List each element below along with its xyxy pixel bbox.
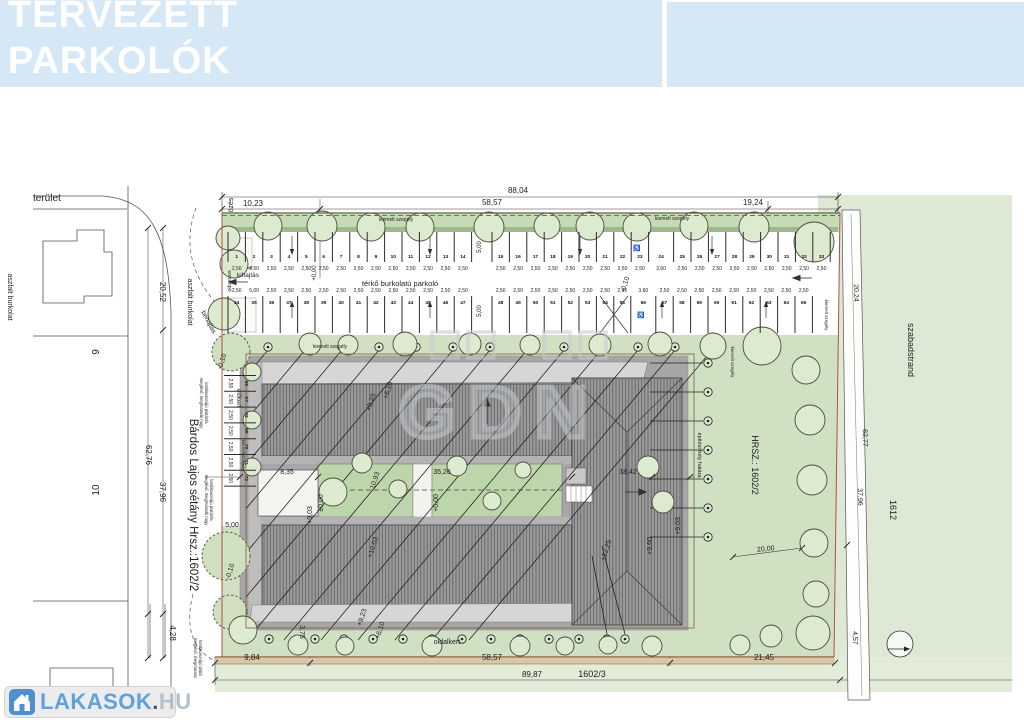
stall-number: 38 [304, 300, 310, 306]
stall-dim: 2,50 [548, 266, 558, 272]
tree [803, 581, 829, 607]
stall-number: 8 [357, 254, 360, 260]
bollard-dot [707, 536, 710, 539]
stall-dim: 2,50 [496, 266, 506, 272]
stall-dim: 2,50 [227, 458, 233, 468]
tree [642, 636, 662, 656]
stall-number: 19 [568, 254, 574, 260]
tree [623, 213, 651, 241]
bollard-dot [268, 638, 271, 641]
bollard-dot [578, 638, 581, 641]
stall-dim: 2,50 [232, 288, 242, 294]
stall-number: 29 [749, 254, 755, 260]
site-plan-drawing: 12,5022,5032,5042,5052,5062,5072,5082,50… [0, 0, 1024, 723]
stall-dim: 2,50 [354, 266, 364, 272]
plan-label: +0,00 [312, 265, 318, 281]
plan-label: 62,77 [861, 429, 869, 447]
plan-label: 10 [91, 484, 102, 496]
stall-dim: 2,50 [531, 266, 541, 272]
stall-dim: 2,50 [747, 288, 757, 294]
house-icon [9, 689, 35, 715]
tree [797, 465, 827, 495]
plan-label: 58,57 [482, 653, 503, 662]
stall-number: 33 [819, 254, 825, 260]
stall-dim: 2,50 [513, 266, 523, 272]
stall-dim: 2,50 [458, 288, 468, 294]
plan-label: 35,26 [433, 469, 451, 476]
stall-dim: 2,50 [513, 288, 523, 294]
stall-number: 15 [498, 254, 504, 260]
stair-symbol [566, 486, 592, 502]
stall-dim: 2,50 [319, 288, 329, 294]
stall-number: 46 [443, 300, 449, 306]
plan-label: ♿ [637, 311, 645, 319]
plan-label: lombkoronájú plátá [198, 640, 203, 676]
plan-label: terület [33, 193, 61, 204]
stall-number: 18 [550, 254, 556, 260]
logo-text-dot: . [152, 689, 159, 714]
bollard-dot [378, 346, 381, 349]
bollard-dot [267, 346, 270, 349]
stall-number: 51 [550, 300, 556, 306]
plan-label: 62,76 [144, 445, 153, 466]
plan-label: aszfalt burkolat [186, 278, 193, 325]
stall-dim: 2,50 [284, 288, 294, 294]
stall-dim: 2,50 [267, 288, 277, 294]
tree [474, 212, 504, 242]
plan-label: özés [228, 197, 235, 212]
stall-dim: 2,50 [677, 266, 687, 272]
stall-number: 43 [391, 300, 397, 306]
plan-label: ♿ [633, 244, 641, 252]
tree [794, 222, 834, 262]
stall-dim: 2,50 [301, 266, 311, 272]
plan-label: 9,84 [244, 653, 260, 662]
bollard-dot [707, 449, 710, 452]
stall-dim: 2,50 [227, 442, 233, 452]
stall-dim: 2,50 [635, 266, 645, 272]
plan-label: 1612 [888, 500, 898, 520]
stall-dim: 2,50 [583, 266, 593, 272]
stall-dim: 2,50 [712, 288, 722, 294]
stall-number: 31 [784, 254, 790, 260]
plan-label: 4,57 [851, 631, 858, 645]
stall-dim: 2,50 [423, 288, 433, 294]
stall-dim: 2,50 [458, 266, 468, 272]
tree [792, 356, 820, 384]
stall-dim: 2,50 [712, 266, 722, 272]
stall-dim: 5,00 [249, 288, 259, 294]
stall-number: 61 [731, 300, 737, 306]
stall-number: 47 [460, 300, 466, 306]
plan-label: kiemelt szegély [824, 300, 829, 332]
stall-dim: 2,50 [799, 288, 809, 294]
tree [556, 637, 574, 655]
stall-dim: 2,50 [694, 288, 704, 294]
plan-label: 58,57 [482, 198, 503, 207]
bollard-dot [707, 507, 710, 510]
tree [795, 405, 825, 435]
stall-number: 48 [498, 300, 504, 306]
plan-label: 89,87 [522, 670, 543, 679]
stall-number: 40 [338, 300, 344, 306]
stall-number: 52 [568, 300, 574, 306]
stall-dim: 2,50 [799, 266, 809, 272]
plan-label: ±0,00 [318, 494, 325, 512]
stall-number: 22 [620, 254, 626, 260]
plan-label: meglévő, megmaranc [193, 638, 198, 678]
tree [510, 636, 530, 656]
stall-dim: 2,50 [677, 288, 687, 294]
stall-number: 64 [784, 300, 790, 306]
bollard-dot [707, 478, 710, 481]
bollard-dot [707, 362, 710, 365]
stall-dim: 2,50 [600, 288, 610, 294]
tree [520, 335, 540, 355]
plan-label: 37,96 [158, 482, 167, 503]
plan-label: 20,24 [852, 284, 860, 302]
stall-dim: 2,50 [565, 288, 575, 294]
plan-label: 19,24 [743, 198, 764, 207]
tree [652, 491, 674, 513]
tree [483, 492, 501, 510]
lakasok-logo[interactable]: LAKASOK.HU [4, 686, 176, 718]
stall-number: 58 [679, 300, 685, 306]
stall-dim: 3,60 [638, 288, 648, 294]
stall-dim: 2,50 [227, 410, 233, 420]
plan-label: 3,75 [298, 625, 305, 639]
tree [229, 616, 257, 644]
plan-label: építési hely határa [696, 433, 702, 479]
tree [700, 333, 726, 359]
stall-dim: 2,50 [406, 288, 416, 294]
tree [576, 212, 604, 240]
plan-label: 9 [91, 349, 102, 355]
stall-number: 56 [641, 300, 647, 306]
stall-number: 17 [533, 254, 539, 260]
plan-label: HRSZ.: 1602/2 [750, 435, 760, 495]
stall-number: 13 [443, 254, 449, 260]
tree [743, 327, 781, 365]
plan-label: 1602/3 [578, 669, 606, 679]
stall-dim: 2,50 [371, 288, 381, 294]
stall-dim: 2,50 [729, 288, 739, 294]
bollard-dot [402, 638, 405, 641]
stall-number: 5 [305, 254, 308, 260]
stall-dim: 2,50 [388, 266, 398, 272]
plan-label: szabadstrand [906, 323, 916, 377]
plan-label: kiemelt szegély [313, 344, 348, 350]
stall-number: 53 [585, 300, 591, 306]
stall-number: 12 [425, 254, 431, 260]
stall-dim: 2,50 [227, 379, 233, 389]
bollard-dot [452, 346, 455, 349]
tree [730, 635, 750, 655]
stall-dim: 2,50 [695, 266, 705, 272]
bollard-dot [637, 346, 640, 349]
bollard-dot [314, 638, 317, 641]
plan-label: +9,60 [647, 537, 654, 555]
stall-number: 39 [321, 300, 327, 306]
plan-label: 88,04 [508, 186, 529, 195]
stall-dim: 2,50 [781, 288, 791, 294]
plan-label: +0,00 [433, 494, 440, 512]
north-symbol [887, 631, 913, 657]
stall-number: 1 [235, 254, 238, 260]
stall-dim: 2,50 [618, 266, 628, 272]
stall-number: 3 [270, 254, 273, 260]
tree [459, 333, 481, 355]
tree [760, 625, 782, 647]
bollard-dot [461, 638, 464, 641]
stall-number: 25 [680, 254, 686, 260]
stall-number: 21 [602, 254, 608, 260]
plan-label: 8,35 [280, 469, 294, 476]
logo-text-tld: HU [159, 689, 192, 714]
stall-number: 10 [391, 254, 397, 260]
tree [389, 480, 407, 498]
plan-label: térkő burkolatú parkoló [362, 279, 438, 288]
stall-number: 9 [375, 254, 378, 260]
stall-dim: 2,50 [817, 266, 827, 272]
plan-label: 4,28 [168, 625, 177, 641]
plan-label: meglévő, megmaradó nagy [204, 475, 209, 527]
stall-dim: 2,50 [764, 266, 774, 272]
stall-dim: 2,50 [227, 426, 233, 436]
stall-dim: 2,50 [371, 266, 381, 272]
watermark-text: GDN [399, 373, 601, 453]
stall-dim: 2,50 [531, 288, 541, 294]
stall-number: 23 [637, 254, 643, 260]
bollard-dot [490, 638, 493, 641]
plan-label: Bárdos Lajos sétány Hrsz.:1602/2 [187, 419, 199, 592]
tree [534, 213, 560, 239]
tree [393, 332, 417, 356]
stall-number: 2 [253, 254, 256, 260]
stall-number: 34 [234, 300, 240, 306]
stall-number: 4 [288, 254, 291, 260]
stall-dim: 2,50 [782, 266, 792, 272]
stall-number: 27 [714, 254, 720, 260]
tree [352, 453, 372, 473]
stall-dim: 2,50 [227, 394, 233, 404]
plan-label: 37,96 [856, 488, 864, 506]
plan-label: előkert [235, 389, 241, 407]
stall-number: 28 [732, 254, 738, 260]
stall-number: 44 [408, 300, 414, 306]
stall-number: 60 [714, 300, 720, 306]
stall-dim: 2,50 [319, 266, 329, 272]
plan-label: sorompó [226, 270, 232, 291]
stall-dim: 2,50 [764, 288, 774, 294]
tree [599, 636, 617, 654]
stall-dim: 2,50 [660, 288, 670, 294]
plan-label: +9,03 [675, 517, 682, 535]
stall-number: 26 [697, 254, 703, 260]
plan-label: kiemelt szegély [379, 217, 414, 223]
stall-dim: 2,50 [730, 266, 740, 272]
plan-label: 5,00 [477, 241, 483, 253]
stall-dim: 2,50 [441, 288, 451, 294]
stall-dim: 2,50 [354, 288, 364, 294]
plan-label: kihajtás [237, 272, 260, 279]
stall-number: 42 [373, 300, 379, 306]
stall-number: 65 [801, 300, 807, 306]
plan-label: lombkoronájú platánfa [209, 479, 214, 521]
stall-dim: 2,50 [548, 288, 558, 294]
stall-dim: 2,50 [600, 266, 610, 272]
stall-number: 41 [356, 300, 362, 306]
plan-label: +9,03 [307, 506, 314, 524]
plan-label: 5,00 [225, 522, 239, 529]
plan-label: meglévő, megmaradó nagy [199, 378, 204, 430]
plan-label: lombkoronájú platánfa [204, 382, 209, 424]
stall-dim: 2,50 [336, 288, 346, 294]
bollard-dot [548, 638, 551, 641]
stall-number: 24 [658, 254, 664, 260]
logo-text-main: LAKASOK [40, 689, 152, 714]
plan-label: aszfalt burkolat [6, 273, 13, 320]
stall-number: 32 [801, 254, 807, 260]
stall-dim: 2,50 [267, 266, 277, 272]
stall-dim: 2,50 [336, 266, 346, 272]
stall-dim: 2,50 [301, 288, 311, 294]
tree [515, 462, 531, 478]
plan-label: kiemelt szegély [730, 347, 735, 379]
tree [796, 616, 830, 650]
stall-number: 49 [515, 300, 521, 306]
plan-label: kiemelt szegély [241, 440, 246, 472]
stall-dim: 2,50 [441, 266, 451, 272]
stall-number: 59 [697, 300, 703, 306]
stall-dim: 2,50 [565, 266, 575, 272]
tree [336, 637, 354, 655]
tree [800, 529, 828, 557]
bollard-dot [707, 391, 710, 394]
tree [254, 212, 282, 240]
bollard-dot [674, 346, 677, 349]
plan-label: oldalkert [434, 639, 461, 646]
stall-dim: 2,50 [423, 266, 433, 272]
plan-label: 21,45 [754, 653, 775, 662]
tree [648, 332, 672, 356]
stall-number: 62 [749, 300, 755, 306]
stall-dim: 2,50 [227, 473, 233, 483]
page: TERVEZETT PARKOLÓK [0, 0, 1024, 723]
plan-label: 10,23 [243, 199, 264, 208]
stall-dim: 2,50 [406, 266, 416, 272]
bollard-dot [624, 638, 627, 641]
plan-label: 20,52 [158, 282, 167, 303]
tree [637, 456, 659, 478]
stall-dim: 2,50 [747, 266, 757, 272]
building-outline-parcel-9 [43, 230, 112, 303]
stall-dim: 2,50 [388, 288, 398, 294]
stall-number: 35 [251, 300, 257, 306]
stall-dim: 2,50 [496, 288, 506, 294]
stall-dim: 2,50 [284, 266, 294, 272]
stall-dim: 2,50 [583, 288, 593, 294]
stall-number: 36 [269, 300, 275, 306]
stall-dim: 3,60 [656, 266, 666, 272]
plan-label: 5,00 [477, 305, 483, 317]
bollard-dot [707, 420, 710, 423]
stall-number: 7 [340, 254, 343, 260]
stall-number: 30 [767, 254, 773, 260]
plan-label: kiemelt szegély [655, 216, 690, 222]
stall-number: 20 [585, 254, 591, 260]
bollard-dot [489, 346, 492, 349]
bollard-dot [563, 346, 566, 349]
stall-number: 50 [533, 300, 539, 306]
plan-label: 18,42 [619, 469, 637, 476]
stall-number: 14 [460, 254, 466, 260]
stall-number: 16 [515, 254, 521, 260]
stall-number: 6 [322, 254, 325, 260]
stall-number: 11 [408, 254, 413, 260]
